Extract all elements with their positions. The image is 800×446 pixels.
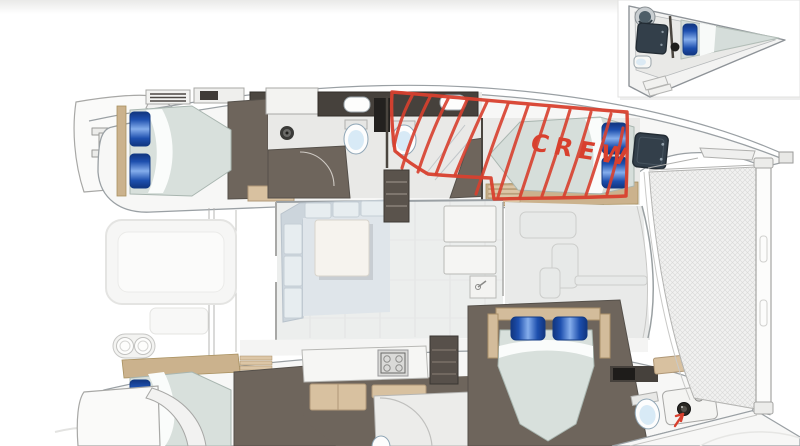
pillow — [511, 317, 545, 340]
stove — [378, 350, 408, 376]
inset-fitting — [671, 43, 680, 52]
pillow — [683, 24, 697, 55]
pillow — [130, 112, 150, 146]
companionway-steps-port — [384, 170, 409, 222]
inset-shower — [636, 23, 668, 55]
bow-crossbeam — [754, 158, 773, 414]
pillow — [553, 317, 587, 340]
sink — [344, 97, 370, 112]
inset-toilet — [634, 56, 651, 68]
shelf-unit — [430, 336, 458, 384]
toilet — [344, 120, 368, 154]
saloon-table — [315, 220, 369, 276]
bow-fitting — [779, 152, 793, 163]
shower-room — [372, 392, 470, 446]
galley — [300, 336, 470, 446]
inset-crew-cabin-detail — [618, 0, 800, 100]
pillow — [130, 154, 150, 188]
deck-hatch — [632, 132, 668, 169]
yacht-deck-plan: CREW — [0, 0, 800, 446]
